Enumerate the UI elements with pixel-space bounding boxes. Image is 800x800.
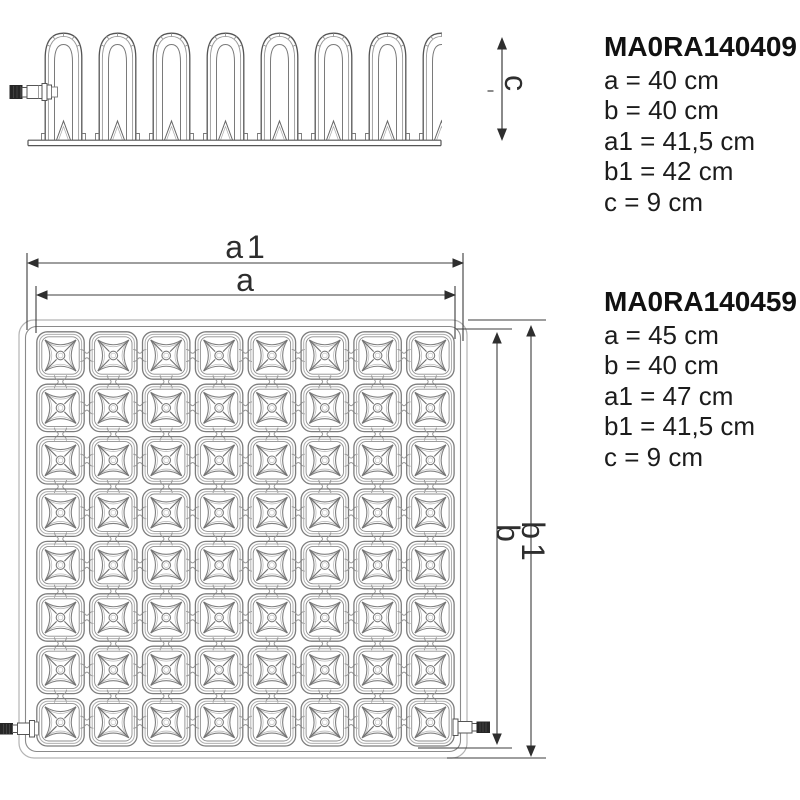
product-spec-block-2: MA0RA140459 a = 45 cm b = 40 cm a1 = 47 … bbox=[604, 287, 794, 472]
spec-line: b = 40 cm bbox=[604, 350, 794, 380]
product-code: MA0RA140409 bbox=[604, 32, 794, 62]
base-plate bbox=[28, 140, 441, 145]
spec-line: b1 = 42 cm bbox=[604, 156, 794, 186]
spec-line: c = 9 cm bbox=[604, 187, 794, 217]
spec-line: a = 45 cm bbox=[604, 320, 794, 350]
dimension-label-c: c bbox=[501, 70, 531, 100]
technical-drawing-sheet: a1 a b b1 c MA0RA140409 a = 40 cm b = 40… bbox=[0, 0, 800, 800]
left-connector-nozzle bbox=[1, 721, 39, 738]
spec-line: a1 = 41,5 cm bbox=[604, 126, 794, 156]
side-view-drawing bbox=[0, 0, 560, 175]
dome-row bbox=[42, 33, 464, 140]
cell-grid bbox=[37, 332, 454, 746]
spec-line: b1 = 41,5 cm bbox=[604, 411, 794, 441]
top-view-drawing bbox=[0, 240, 560, 780]
product-spec-block-1: MA0RA140409 a = 40 cm b = 40 cm a1 = 41,… bbox=[604, 32, 794, 217]
spec-line: c = 9 cm bbox=[604, 442, 794, 472]
panel-outline bbox=[19, 320, 467, 758]
dimension-label-b1: b1 bbox=[518, 521, 548, 565]
dimension-label-a: a bbox=[182, 265, 312, 295]
product-code: MA0RA140459 bbox=[604, 287, 794, 317]
spec-line: b = 40 cm bbox=[604, 95, 794, 125]
spec-line: a1 = 47 cm bbox=[604, 381, 794, 411]
side-connector-nozzle bbox=[10, 84, 58, 101]
right-connector-nozzle bbox=[453, 719, 490, 736]
spec-line: a = 40 cm bbox=[604, 65, 794, 95]
dimension-label-a1: a1 bbox=[182, 232, 312, 262]
